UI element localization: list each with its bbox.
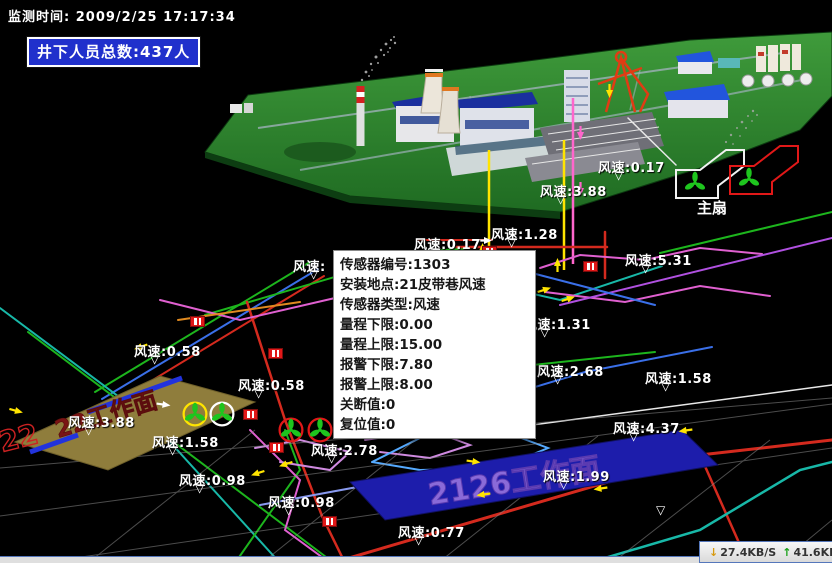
sensor-pointer-icon: ▽ bbox=[556, 193, 565, 205]
wind-speed-label[interactable]: 风速:0.98▽ bbox=[268, 492, 335, 511]
sensor-pointer-icon: ▽ bbox=[309, 268, 318, 280]
popup-line-sensor-id: 传感器编号:1303 bbox=[340, 255, 529, 275]
wind-speed-value: 风速:0.77 bbox=[398, 526, 465, 541]
chimney-smoke bbox=[361, 36, 396, 81]
sensor-pointer-icon: ▽ bbox=[150, 353, 159, 365]
wind-speed-label[interactable]: 风速:▽ bbox=[293, 256, 326, 275]
sensor-pointer-icon: ▽ bbox=[414, 534, 423, 546]
sensor-pointer-icon: ▽ bbox=[614, 169, 623, 181]
main-fan-icon[interactable] bbox=[736, 166, 762, 192]
download-speed: 27.4KB/S bbox=[720, 546, 776, 559]
sensor-pointer-icon: ▽ bbox=[327, 452, 336, 464]
wind-speed-label[interactable]: 风速:0.58▽ bbox=[134, 341, 201, 360]
sensor-pointer-icon: ▽ bbox=[284, 504, 293, 516]
upload-speed: 41.6KB/ bbox=[793, 546, 832, 559]
wind-speed-label[interactable]: 风速:3.88▽ bbox=[68, 412, 135, 431]
wind-speed-label[interactable]: 风速:1.58▽ bbox=[152, 432, 219, 451]
wind-speed-label[interactable]: 风速:5.31▽ bbox=[625, 250, 692, 269]
wind-speed-value: 风速:1.99 bbox=[543, 470, 610, 485]
wind-speed-label[interactable]: 风速:2.68▽ bbox=[537, 361, 604, 380]
popup-line-range-high: 量程上限:15.00 bbox=[340, 335, 529, 355]
wind-speed-value: 风速:4.37 bbox=[613, 422, 680, 437]
sensor-pointer-icon: ▽ bbox=[641, 262, 650, 274]
sensor-pointer-icon: ▽ bbox=[661, 380, 670, 392]
sensor-pointer-icon: ▽ bbox=[507, 236, 516, 248]
sensor-marker-icon[interactable] bbox=[268, 348, 283, 359]
wind-speed-value: 风速:2.68 bbox=[537, 365, 604, 380]
wind-speed-value: 风速:1.58 bbox=[645, 372, 712, 387]
wind-speed-value: 风速:5.31 bbox=[625, 254, 692, 269]
sensor-pointer-icon: ▽ bbox=[540, 326, 549, 338]
wind-speed-label[interactable]: 风速:3.88▽ bbox=[540, 181, 607, 200]
network-speed-panel: ↓ 27.4KB/S ↑ 41.6KB/ bbox=[699, 541, 832, 563]
main-fan-label: 主扇 bbox=[697, 197, 727, 218]
sensor-pointer-icon: ▽ bbox=[656, 504, 665, 516]
sensor-pointer-icon: ▽ bbox=[84, 424, 93, 436]
wind-speed-value: 风速:0.98 bbox=[179, 474, 246, 489]
wind-speed-value: 风速:2.78 bbox=[311, 444, 378, 459]
wind-speed-label[interactable]: 风速:1.99▽ bbox=[543, 466, 610, 485]
popup-line-type: 传感器类型:风速 bbox=[340, 295, 529, 315]
sensor-pointer-icon: ▽ bbox=[168, 444, 177, 456]
wind-speed-label[interactable]: 风速:0.77▽ bbox=[398, 522, 465, 541]
wind-speed-value: 风速:1.58 bbox=[152, 436, 219, 451]
sensor-marker-icon[interactable] bbox=[243, 409, 258, 420]
popup-line-reset: 复位值:0 bbox=[340, 415, 529, 435]
yellow-ring-fan-icon[interactable] bbox=[182, 401, 208, 427]
download-arrow-icon: ↓ bbox=[709, 546, 718, 559]
popup-line-alarm-low: 报警下限:7.80 bbox=[340, 355, 529, 375]
sensor-pointer-icon: ▽ bbox=[254, 387, 263, 399]
wind-speed-value: 风速:0.58 bbox=[238, 379, 305, 394]
wind-speed-label[interactable]: 风速:0.17▽ bbox=[598, 157, 665, 176]
popup-line-range-low: 量程下限:0.00 bbox=[340, 315, 529, 335]
sensor-marker-icon[interactable] bbox=[583, 261, 598, 272]
sensor-marker-icon[interactable] bbox=[190, 316, 205, 327]
sensor-pointer-icon: ▽ bbox=[629, 430, 638, 442]
sensor-pointer-icon: ▽ bbox=[559, 478, 568, 490]
white-ring-fan-icon[interactable] bbox=[209, 401, 235, 427]
sensor-info-popup[interactable]: 传感器编号:1303 安装地点:21皮带巷风速 传感器类型:风速 量程下限:0.… bbox=[333, 250, 536, 439]
upload-arrow-icon: ↑ bbox=[782, 546, 791, 559]
wind-speed-label[interactable]: 风速:0.98▽ bbox=[179, 470, 246, 489]
popup-line-alarm-high: 报警上限:8.00 bbox=[340, 375, 529, 395]
wind-speed-value: 风速:0.98 bbox=[268, 496, 335, 511]
wind-speed-value: 风速:0.17 bbox=[598, 161, 665, 176]
wind-speed-value: 风速:3.88 bbox=[540, 185, 607, 200]
sensor-marker-icon[interactable] bbox=[269, 442, 284, 453]
wind-speed-label[interactable]: 风速:4.37▽ bbox=[613, 418, 680, 437]
popup-line-location: 安装地点:21皮带巷风速 bbox=[340, 275, 529, 295]
wind-speed-value: 风速:3.88 bbox=[68, 416, 135, 431]
wind-speed-label[interactable]: 风速:0.58▽ bbox=[238, 375, 305, 394]
wind-speed-label[interactable]: 风速:1.58▽ bbox=[645, 368, 712, 387]
personnel-count-badge[interactable]: 井下人员总数:437人 bbox=[27, 37, 200, 67]
sensor-pointer-icon: ▽ bbox=[553, 373, 562, 385]
monitor-screen: 22工作面 22 2126工作面 bbox=[0, 0, 832, 563]
main-fan-icon[interactable] bbox=[682, 170, 708, 196]
wind-speed-value: 风速:0.58 bbox=[134, 345, 201, 360]
red-ring-fan-icon[interactable] bbox=[278, 417, 304, 443]
monitor-time: 监测时间: 2009/2/25 17:17:34 bbox=[8, 6, 236, 25]
wind-speed-label[interactable]: 风速:1.28▽ bbox=[491, 224, 558, 243]
wind-speed-value: 风速:1.28 bbox=[491, 228, 558, 243]
sensor-pointer-icon: ▽ bbox=[195, 482, 204, 494]
red-ring-fan-icon[interactable] bbox=[307, 417, 333, 443]
popup-line-cutoff: 关断值:0 bbox=[340, 395, 529, 415]
sensor-marker-icon[interactable] bbox=[322, 516, 337, 527]
